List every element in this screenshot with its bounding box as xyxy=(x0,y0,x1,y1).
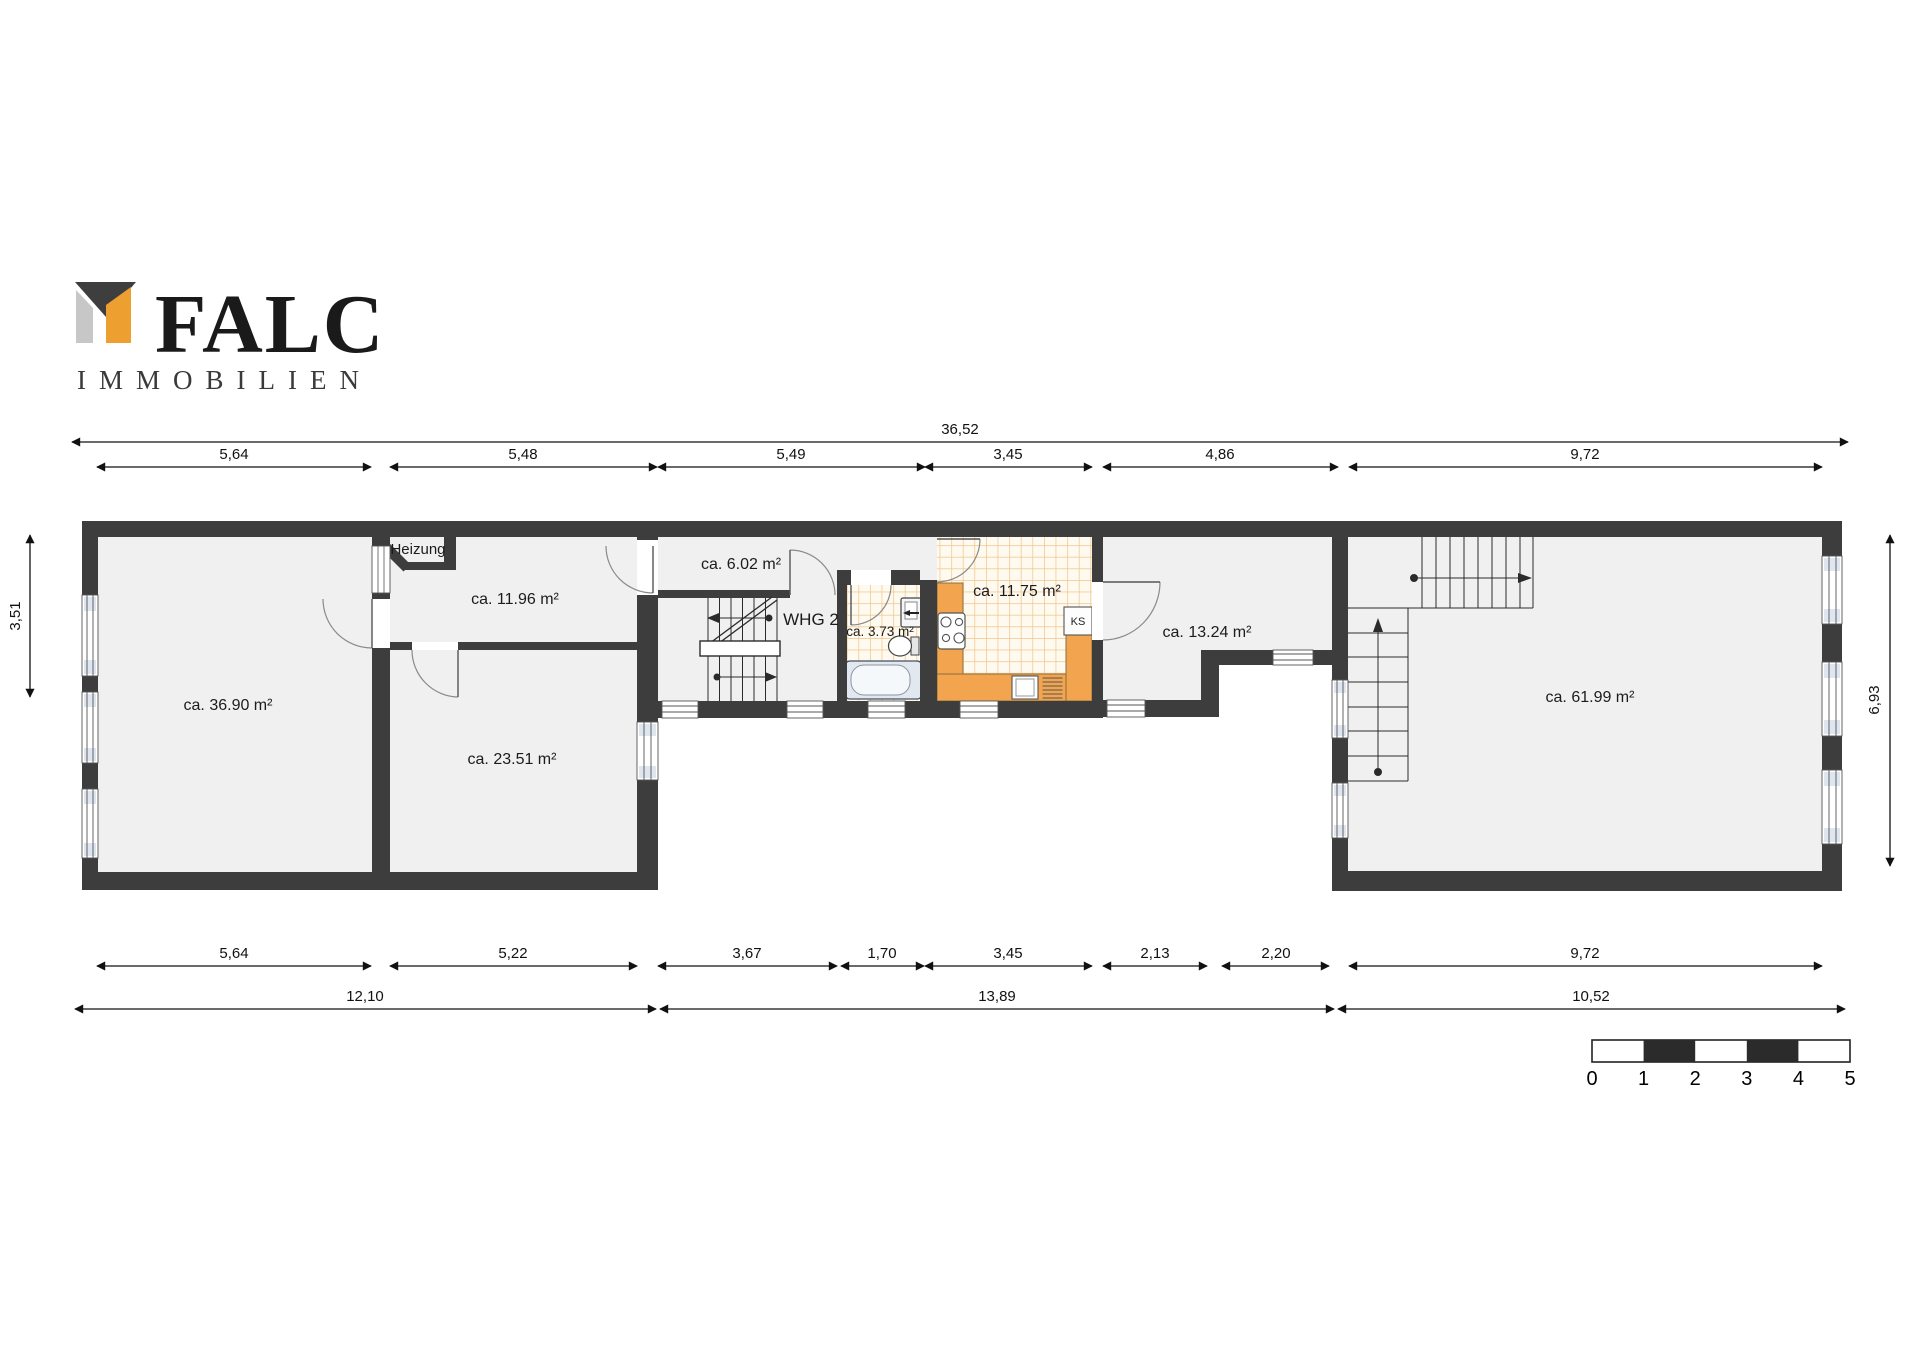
kitchen-counter-right xyxy=(1066,635,1092,701)
scale-bar: 0 1 2 3 4 5 xyxy=(1586,1040,1855,1090)
dim-top-segment: 5,48 xyxy=(390,446,657,467)
window xyxy=(1822,556,1842,624)
window xyxy=(1107,700,1145,717)
window xyxy=(1332,783,1348,838)
room-label-2351: ca. 23.51 m² xyxy=(468,751,558,768)
stair-landing xyxy=(700,641,780,656)
dim-bottom-total: 12,10 xyxy=(75,988,656,1009)
bathtub-icon xyxy=(845,661,922,699)
heizung-label: Heizung xyxy=(390,541,445,558)
dim-bottom-total: 13,89 xyxy=(660,988,1334,1009)
room-label-kitchen: ca. 11.75 m² xyxy=(973,583,1061,600)
window xyxy=(960,701,998,718)
svg-text:5,48: 5,48 xyxy=(508,446,537,463)
scale-tick: 1 xyxy=(1638,1068,1649,1090)
dim-bottom-segment: 3,45 xyxy=(925,945,1092,966)
window xyxy=(82,692,98,763)
bath-sink-icon xyxy=(901,598,921,627)
svg-text:1,70: 1,70 xyxy=(867,945,896,962)
room-label-living: ca. 36.90 m² xyxy=(184,697,274,714)
right-block-wall-bottom xyxy=(1332,871,1842,891)
svg-text:3,51: 3,51 xyxy=(7,601,24,630)
dim-bottom-total: 10,52 xyxy=(1338,988,1845,1009)
logo-brand-text: FALC xyxy=(155,278,385,371)
room-label-big: ca. 61.99 m² xyxy=(1546,689,1636,706)
dim-right-height: 6,93 xyxy=(1866,535,1890,866)
svg-text:2,20: 2,20 xyxy=(1261,945,1290,962)
scale-tick: 2 xyxy=(1690,1068,1701,1090)
notch-wall-top xyxy=(1201,650,1338,665)
dim-bottom-segment: 5,22 xyxy=(390,945,637,966)
dim-bottom-segment: 9,72 xyxy=(1349,945,1822,966)
svg-text:9,72: 9,72 xyxy=(1570,945,1599,962)
heizung-wall-bottom xyxy=(402,562,456,570)
dim-bottom-segment: 2,20 xyxy=(1222,945,1329,966)
room-label-bath: ca. 3.73 m² xyxy=(846,624,914,639)
svg-text:12,10: 12,10 xyxy=(346,988,384,1005)
room-label-1196: ca. 11.96 m² xyxy=(471,591,559,608)
fridge-icon: KS xyxy=(1064,607,1092,635)
window xyxy=(1822,662,1842,736)
fridge-label: KS xyxy=(1071,616,1086,628)
dim-top-segment: 5,49 xyxy=(658,446,925,467)
window xyxy=(1273,650,1313,665)
scale-bar-segment xyxy=(1644,1040,1696,1062)
dim-top-segment: 5,64 xyxy=(97,446,371,467)
svg-text:9,72: 9,72 xyxy=(1570,446,1599,463)
svg-text:4,86: 4,86 xyxy=(1205,446,1234,463)
svg-text:5,22: 5,22 xyxy=(498,945,527,962)
window xyxy=(1332,680,1348,738)
dim-bottom-segment: 5,64 xyxy=(97,945,371,966)
svg-text:2,13: 2,13 xyxy=(1140,945,1169,962)
dim-top-segment: 3,45 xyxy=(925,446,1092,467)
kitchen-wall-left xyxy=(920,580,937,701)
dim-bottom-segment: 3,67 xyxy=(658,945,837,966)
falc-logo: FALC IMMOBILIEN xyxy=(75,278,385,395)
window xyxy=(662,701,698,718)
room-label-hall: ca. 6.02 m² xyxy=(701,556,782,573)
svg-text:36,52: 36,52 xyxy=(941,421,979,438)
stove-icon xyxy=(938,613,965,649)
dim-top-total: 36,52 xyxy=(72,421,1848,442)
scale-tick: 3 xyxy=(1741,1068,1752,1090)
scale-tick: 4 xyxy=(1793,1068,1804,1090)
logo-subtitle-text: IMMOBILIEN xyxy=(77,365,372,395)
scale-tick: 5 xyxy=(1844,1068,1855,1090)
room-label-whg2: WHG 2 xyxy=(783,610,839,629)
left-block-floor xyxy=(98,537,637,872)
svg-text:3,45: 3,45 xyxy=(993,446,1022,463)
scale-bar-segment xyxy=(1747,1040,1799,1062)
svg-text:5,64: 5,64 xyxy=(219,446,248,463)
svg-text:3,45: 3,45 xyxy=(993,945,1022,962)
dim-left-height: 3,51 xyxy=(7,535,30,697)
outer-wall-top xyxy=(82,521,1842,537)
corridor-wall xyxy=(658,590,790,598)
scale-tick: 0 xyxy=(1586,1068,1597,1090)
heizung-door xyxy=(372,546,390,593)
svg-text:6,93: 6,93 xyxy=(1866,685,1883,714)
svg-text:3,67: 3,67 xyxy=(732,945,761,962)
window xyxy=(82,595,98,676)
dim-top-segment: 4,86 xyxy=(1103,446,1338,467)
window xyxy=(637,722,658,780)
window xyxy=(868,701,905,718)
window xyxy=(787,701,823,718)
floorplan-canvas: FALC IMMOBILIEN xyxy=(0,0,1920,1357)
svg-text:10,52: 10,52 xyxy=(1572,988,1610,1005)
toilet-icon xyxy=(889,636,920,656)
bath-wall-left xyxy=(837,585,847,701)
scale-bar-frame xyxy=(1592,1040,1850,1062)
window xyxy=(1822,770,1842,844)
svg-text:5,64: 5,64 xyxy=(219,945,248,962)
room-label-1324: ca. 13.24 m² xyxy=(1163,624,1253,641)
floorplan-page: FALC IMMOBILIEN xyxy=(0,0,1920,1357)
dim-bottom-segment: 2,13 xyxy=(1103,945,1207,966)
svg-text:5,49: 5,49 xyxy=(776,446,805,463)
dim-top-segment: 9,72 xyxy=(1349,446,1822,467)
left-block-wall-bottom xyxy=(82,872,658,890)
window xyxy=(82,789,98,858)
dim-bottom-segment: 1,70 xyxy=(841,945,924,966)
svg-text:13,89: 13,89 xyxy=(978,988,1016,1005)
